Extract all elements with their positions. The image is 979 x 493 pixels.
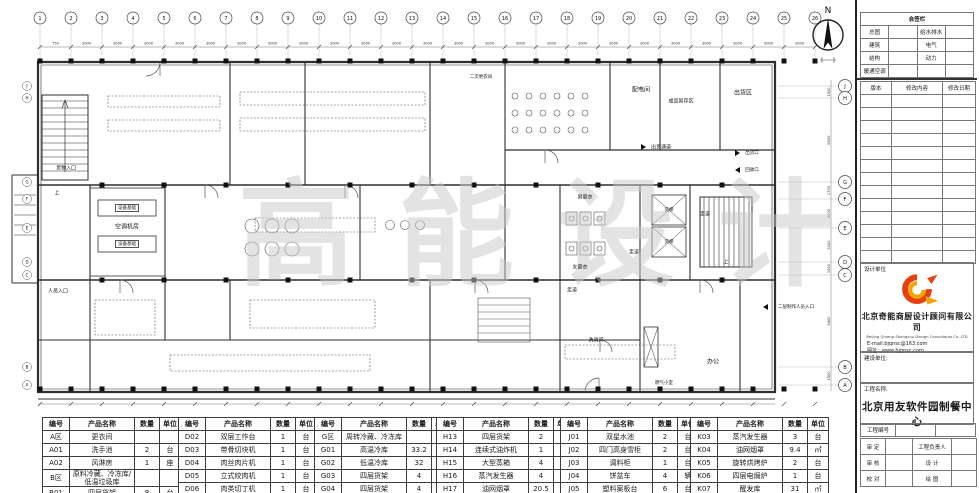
grid-layer: 1750230003300043000530006300073000830009…: [23, 12, 852, 406]
column-marker: [751, 59, 756, 64]
table-row: 暖通空调: [861, 65, 974, 78]
table-row: 建筑电气: [861, 39, 974, 52]
column-marker: [658, 183, 663, 188]
label-staff-entrance: 人员入口: [48, 288, 68, 295]
column-marker: [162, 183, 167, 188]
sign-table: 会签栏 总图给水排水建筑电气结构动力暖通空调: [860, 12, 974, 78]
column-marker: [193, 387, 198, 392]
column-marker: [658, 387, 663, 392]
column-marker: [503, 387, 508, 392]
column-marker: [100, 278, 105, 283]
table-row: A01洗手池2台: [43, 444, 181, 457]
column-marker: [596, 183, 601, 188]
grid-dim: 5400: [827, 316, 831, 326]
label-shipping-area: 出货区: [734, 88, 752, 97]
grid-number: 24: [750, 16, 756, 22]
grid-dim: 3000: [237, 42, 247, 46]
column-marker: [255, 59, 260, 64]
table-row: G01高温冷库33.2㎡: [315, 444, 453, 457]
column-marker: [720, 183, 725, 188]
grid-letter: G: [25, 180, 28, 185]
label-equipment-base-1: 设备基础: [115, 204, 139, 212]
column-marker: [100, 183, 105, 188]
column-marker: [720, 387, 725, 392]
grid-letter: H: [843, 96, 847, 102]
grid-letter: H: [25, 96, 28, 101]
column-marker: [224, 59, 229, 64]
table-row: H15大型蒸箱4台: [437, 457, 575, 470]
label-corridor-2: 走道: [629, 249, 639, 256]
table-row: 编号产品名称数量单位: [437, 418, 575, 431]
column-marker: [472, 278, 477, 283]
grid-dim: 1500: [827, 263, 831, 273]
grid-number: 6: [193, 16, 196, 22]
table-row: [861, 108, 976, 121]
column-marker: [193, 59, 198, 64]
table-row: K07醒发库31㎡: [691, 483, 829, 493]
column-marker: [162, 278, 167, 283]
company-logo: [861, 273, 973, 311]
column-marker: [100, 387, 105, 392]
column-marker: [627, 59, 632, 64]
grid-dim: 3000: [764, 42, 774, 46]
table-row: [861, 199, 976, 212]
column-marker: [100, 59, 105, 64]
table-row: B01四层货架8台: [43, 487, 181, 493]
label-freight-elevator-2: 货梯: [665, 239, 674, 245]
table-row: K03蒸汽发生器3台: [691, 431, 829, 444]
column-marker: [224, 387, 229, 392]
grid-number: 9: [286, 16, 289, 22]
table-row: [861, 173, 976, 186]
grid-dim: 1500: [827, 371, 831, 381]
column-marker: [472, 387, 477, 392]
grid-number: 11: [347, 16, 353, 22]
company-name-en: Beijing Qineng Shangchu Design Consultan…: [861, 334, 973, 339]
column-marker: [162, 387, 167, 392]
column-marker: [596, 278, 601, 283]
equipment-table-a-b: 编号产品名称数量单位A区更衣间A01洗手池2台A02风淋房1座B区原料冷藏、冷冻…: [42, 417, 181, 493]
table-row: [861, 186, 976, 199]
grid-dim: 3000: [733, 42, 743, 46]
table-row: J03调料柜1台: [561, 457, 699, 470]
table-row: D05立式绞肉机1台: [179, 470, 317, 483]
table-row: 编号产品名称数量单位: [691, 418, 829, 431]
table-row: D02双层工作台1台: [179, 431, 317, 444]
company-name-cn: 北京奇能商厨设计顾问有限公司: [861, 311, 973, 333]
column-marker: [410, 278, 415, 283]
column-marker: [534, 278, 539, 283]
storage-rack: [478, 298, 530, 342]
table-row: [861, 160, 976, 173]
column-marker: [69, 59, 74, 64]
grid-dim: 3000: [454, 42, 464, 46]
table-row: G03四层货架4台: [315, 470, 453, 483]
label-corridor-1: 走道: [700, 211, 710, 218]
column-marker: [441, 59, 446, 64]
column-marker: [348, 278, 353, 283]
grid-dim: 3000: [144, 42, 154, 46]
equipment-table-h: 编号产品名称数量单位H13四层货架2台H14连续式油炸机1台H15大型蒸箱4台H…: [436, 417, 575, 493]
table-row: K04油网烟罩9.4㎡: [691, 444, 829, 457]
table-row: D04肉丝肉片机1台: [179, 457, 317, 470]
column-marker: [472, 183, 477, 188]
table-row: J01双星水池2台: [561, 431, 699, 444]
stairs-right: [700, 197, 752, 267]
grid-number: 23: [719, 16, 725, 22]
grid-number: 2: [69, 16, 72, 22]
grid-letter: D: [843, 260, 847, 266]
column-marker: [813, 59, 818, 64]
column-marker: [782, 387, 787, 392]
design-unit-label: 设计单位: [864, 265, 973, 273]
table-row: [861, 95, 976, 108]
label-shipping-corridor: 出货通道: [651, 144, 671, 151]
column-marker: [472, 59, 477, 64]
grid-number: 22: [688, 16, 694, 22]
sign-table-title: 会签栏: [861, 13, 974, 26]
column-marker: [348, 183, 353, 188]
grid-dim: 3000: [795, 42, 805, 46]
grid-number: 5: [162, 16, 165, 22]
column-marker: [813, 387, 818, 392]
toilet-stalls: [566, 212, 605, 255]
grid-letter: E: [843, 226, 846, 232]
column-marker: [69, 387, 74, 392]
table-row: H17油网烟罩20.5㎡: [437, 483, 575, 493]
divider: [857, 78, 977, 80]
grid-dim: 3000: [485, 42, 495, 46]
column-marker: [348, 387, 353, 392]
table-row: [861, 134, 976, 147]
grid-number: 14: [440, 16, 446, 22]
label-washing-room: 洗消间: [588, 337, 603, 344]
label-finished-storage: 成品暂存区: [668, 98, 693, 105]
grid-dim: 3000: [175, 42, 185, 46]
label-up-1: 上: [54, 190, 59, 197]
grid-dim: 3000: [423, 42, 433, 46]
table-row: K05旋转烘烤炉2台: [691, 457, 829, 470]
grid-dim: 3000: [392, 42, 402, 46]
grid-dim: 3000: [702, 42, 712, 46]
column-marker: [317, 59, 322, 64]
grid-dim: 3000: [827, 208, 831, 218]
table-row: G02低温冷库32㎡: [315, 457, 453, 470]
table-row: H14连续式油炸机1台: [437, 444, 575, 457]
grid-number: 21: [657, 16, 663, 22]
column-marker: [379, 59, 384, 64]
grid-letter: F: [844, 197, 847, 203]
building-walls: [12, 62, 775, 399]
column-marker: [286, 387, 291, 392]
column-marker: [782, 59, 787, 64]
grid-dim: 3000: [330, 42, 340, 46]
table-row: H16蒸汽发生器4台: [437, 470, 575, 483]
label-recycle-port: 回收口: [745, 167, 759, 173]
column-marker: [255, 387, 260, 392]
column-marker: [534, 387, 539, 392]
label-second-floor-entrance: 二层制作人员入口: [778, 304, 814, 310]
column-marker: [658, 278, 663, 283]
table-row: 审 核设 计: [861, 455, 977, 471]
grid-number: 16: [502, 16, 508, 22]
column-marker: [565, 59, 570, 64]
column-marker: [689, 387, 694, 392]
label-goods-entrance: 货物入口: [56, 165, 76, 172]
equipment-table-j: 编号产品名称数量单位J01双星水池2台J02四门高身雪柜2台J03调料柜1台J0…: [560, 417, 699, 493]
column-marker: [503, 59, 508, 64]
grid-number: 18: [564, 16, 570, 22]
grid-letter: D: [25, 260, 28, 265]
grid-dim: 3000: [82, 42, 92, 46]
column-marker: [441, 387, 446, 392]
grid-letter: J: [843, 84, 845, 90]
column-marker: [410, 183, 415, 188]
table-row: 编号产品名称数量单位: [561, 418, 699, 431]
grid-letter: G: [843, 180, 847, 186]
grid-dim: 3000: [671, 42, 681, 46]
column-marker: [751, 387, 756, 392]
column-marker: [131, 59, 136, 64]
column-marker: [720, 59, 725, 64]
revision-table: 版本修改内容修改日期: [860, 81, 974, 264]
column-marker: [286, 183, 291, 188]
project-name-label: 工程名称:: [864, 385, 973, 393]
table-row: 审 定工程负责人: [861, 439, 977, 455]
equipment-table-k: 编号产品名称数量单位K03蒸汽发生器3台K04油网烟罩9.4㎡K05旋转烘烤炉2…: [690, 417, 829, 493]
column-marker: [379, 387, 384, 392]
grid-dim: 3000: [609, 42, 619, 46]
grid-number: 20: [626, 16, 632, 22]
grid-letter: B: [843, 365, 847, 371]
grid-dim: 3000: [113, 42, 123, 46]
label-female-dressing: 女更衣: [572, 264, 587, 271]
grid-dim: 6000: [827, 135, 831, 145]
tables-and-stools: [245, 93, 588, 256]
label-office: 办公: [707, 357, 719, 366]
table-row: [861, 238, 976, 251]
grid-number: 4: [131, 16, 134, 22]
column-marker: [224, 183, 229, 188]
table-row: K06四层电焗炉1台: [691, 470, 829, 483]
label-ac-room: 空调机房: [115, 222, 139, 231]
column-marker: [286, 278, 291, 283]
grid-number: 13: [409, 16, 415, 22]
label-up-2: 上: [723, 259, 728, 266]
table-row: [861, 212, 976, 225]
grid-number: 17: [533, 16, 539, 22]
table-row: [861, 121, 976, 134]
table-row: J04饼盆车4辆: [561, 470, 699, 483]
column-marker: [689, 59, 694, 64]
table-row: [861, 225, 976, 238]
grid-dim: 3000: [299, 42, 309, 46]
project-no-row: 工程编号: [860, 423, 974, 437]
grid-dim: 3000: [827, 240, 831, 250]
label-second-dressing: 二次更衣间: [470, 74, 493, 80]
grid-number: 10: [316, 16, 322, 22]
table-row: A02风淋房1座: [43, 457, 181, 470]
approval-table: 审 定工程负责人审 核设 计校 对绘 图: [860, 438, 974, 487]
table-row: G04四层货架4台: [315, 483, 453, 493]
grid-dim: 1500: [827, 87, 831, 97]
grid-letter: J: [25, 84, 27, 89]
grid-number: 26: [812, 16, 818, 22]
equipment-table-g: 编号产品名称数量单位G区周转冷藏、冷冻库G01高温冷库33.2㎡G02低温冷库3…: [314, 417, 453, 493]
column-marker: [627, 387, 632, 392]
grid-number: 8: [255, 16, 258, 22]
grid-number: 19: [595, 16, 601, 22]
column-marker: [720, 278, 725, 283]
column-marker: [38, 59, 43, 64]
column-marker: [410, 59, 415, 64]
project-name-section: 工程名称: 北京用友软件园制餐中心: [860, 382, 974, 425]
column-marker: [410, 387, 415, 392]
grid-dim: 3000: [578, 42, 588, 46]
grid-letter: A: [26, 383, 29, 388]
build-unit-section: 建设单位:: [860, 351, 974, 384]
grid-dim: 3000: [206, 42, 216, 46]
grid-number: 7: [224, 16, 227, 22]
table-row: D03带骨切块机1台: [179, 444, 317, 457]
column-marker: [131, 387, 136, 392]
label-equipment-base-2: 设备基础: [115, 240, 139, 248]
label-male-dressing: 男更衣: [577, 194, 592, 201]
title-block: 会签栏 总图给水排水建筑电气结构动力暖通空调 版本修改内容修改日期 设计单位 北…: [855, 0, 979, 493]
label-power-room: 配电间: [632, 85, 650, 94]
table-row: G区周转冷藏、冷冻库: [315, 431, 453, 444]
grid-dim: 3000: [516, 42, 526, 46]
column-marker: [565, 387, 570, 392]
ac-machine-room: [90, 188, 165, 276]
label-freight-elevator-1: 货梯: [665, 207, 674, 213]
column-marker: [317, 387, 322, 392]
door-arcs: [120, 62, 713, 392]
column-marker: [286, 59, 291, 64]
drawing-sheet: 1750230003300043000530006300073000830009…: [0, 0, 979, 493]
column-marker: [596, 59, 601, 64]
equipment-table-d: 编号产品名称数量单位D02双层工作台1台D03带骨切块机1台D04肉丝肉片机1台…: [178, 417, 317, 493]
grid-dim: 1700: [827, 185, 831, 195]
design-unit-section: 设计单位 北京奇能商厨设计顾问有限公司 Beijing Qineng Shang…: [860, 262, 974, 353]
grid-dim: 3000: [640, 42, 650, 46]
freight-elevators: [644, 195, 686, 367]
grid-number: 25: [781, 16, 787, 22]
table-row: 结构动力: [861, 52, 974, 65]
grid-dim: 3000: [361, 42, 371, 46]
grid-number: 12: [378, 16, 384, 22]
grid-dim: 3000: [547, 42, 557, 46]
column-marker: [224, 278, 229, 283]
column-marker: [658, 59, 663, 64]
build-unit-label: 建设单位:: [864, 354, 973, 362]
table-row: H13四层货架2台: [437, 431, 575, 444]
table-row: 总图给水排水: [861, 26, 974, 39]
grid-number: 3: [100, 16, 103, 22]
table-row: J02四门高身雪柜2台: [561, 444, 699, 457]
table-row: J05塑料案板台6台: [561, 483, 699, 493]
table-row: 编号产品名称数量单位: [179, 418, 317, 431]
grid-number: 1: [38, 16, 41, 22]
north-label: N: [825, 6, 832, 16]
table-row: B区原料冷藏、冷冻库/低温垃圾库: [43, 470, 181, 487]
grid-number: 15: [471, 16, 477, 22]
grid-letter: C: [843, 273, 847, 279]
table-row: 版本修改内容修改日期: [861, 82, 976, 95]
grid-dim: 3000: [268, 42, 278, 46]
grid-letter: C: [26, 273, 29, 278]
column-marker: [534, 59, 539, 64]
table-row: 编号产品名称数量单位: [43, 418, 181, 431]
table-row: 工程编号: [861, 424, 976, 437]
equipment-benches: [95, 92, 675, 371]
grid-letter: B: [26, 365, 29, 370]
table-row: A区更衣间: [43, 431, 181, 444]
column-marker: [162, 59, 167, 64]
table-row: 编号产品名称数量单位: [315, 418, 453, 431]
column-marker: [38, 387, 43, 392]
grid-dim: 750: [52, 42, 60, 46]
label-gas-room: 燃气小室: [655, 380, 673, 386]
label-corridor-3: 走道: [567, 287, 577, 294]
table-row: 校 对绘 图: [861, 471, 977, 487]
column-marker: [348, 59, 353, 64]
column-marker: [596, 387, 601, 392]
table-row: D06肉类切丁机1台: [179, 483, 317, 493]
grid-letter: A: [843, 383, 847, 389]
table-row: [861, 147, 976, 160]
column-marker: [534, 183, 539, 188]
label-shipping-port: 出货口: [745, 150, 759, 156]
